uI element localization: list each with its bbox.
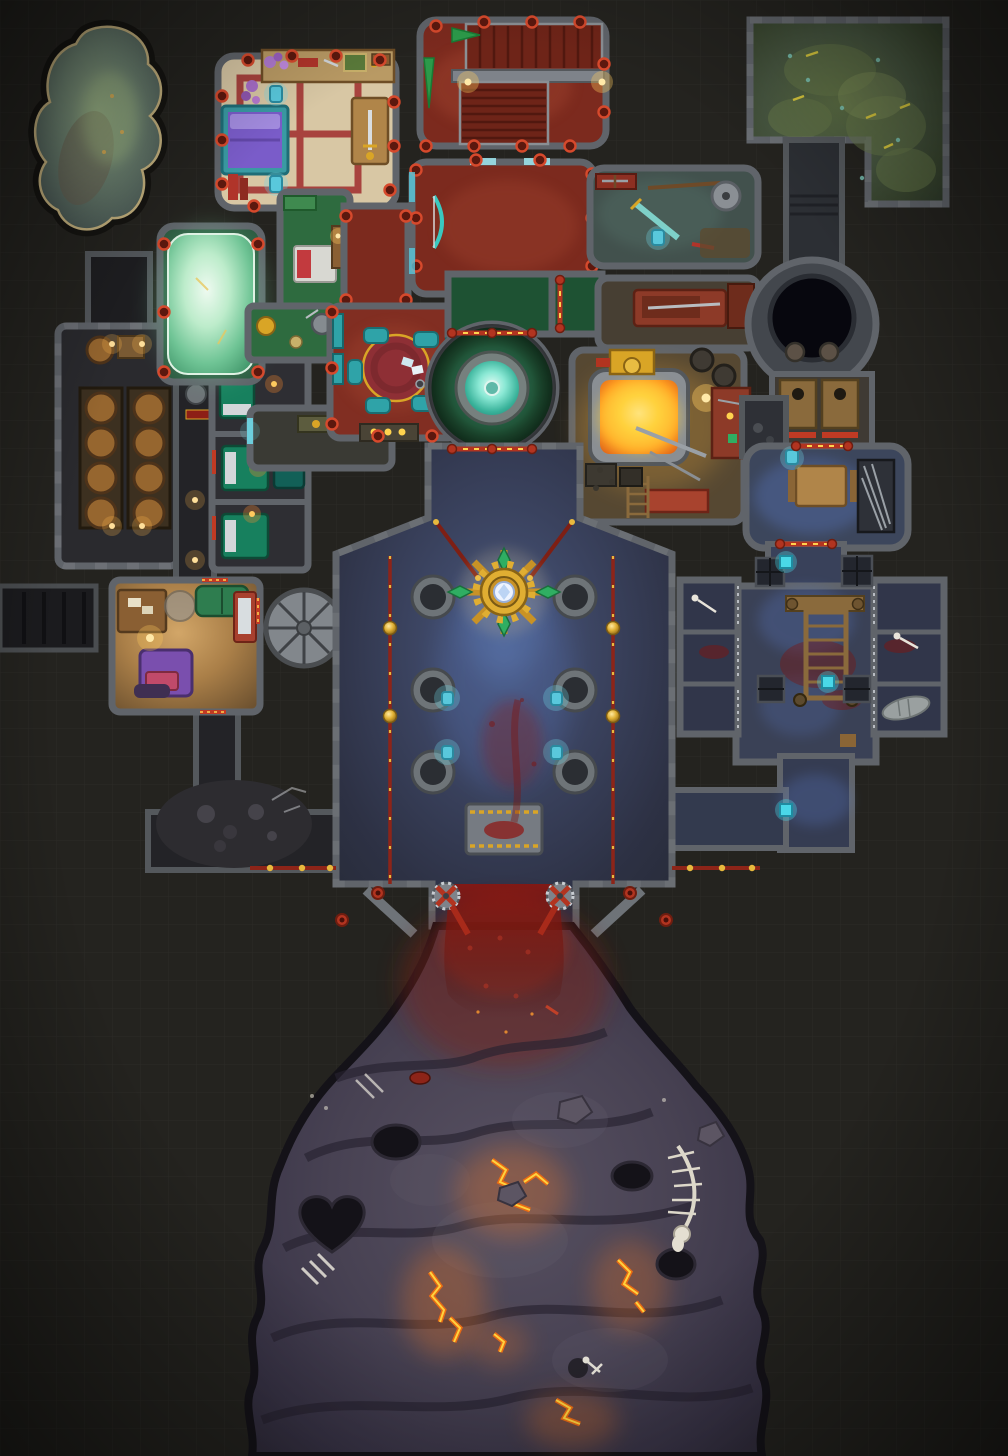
vignette [0, 0, 1008, 1456]
map-canvas [0, 0, 1008, 1456]
map-viewport [0, 0, 1008, 1456]
